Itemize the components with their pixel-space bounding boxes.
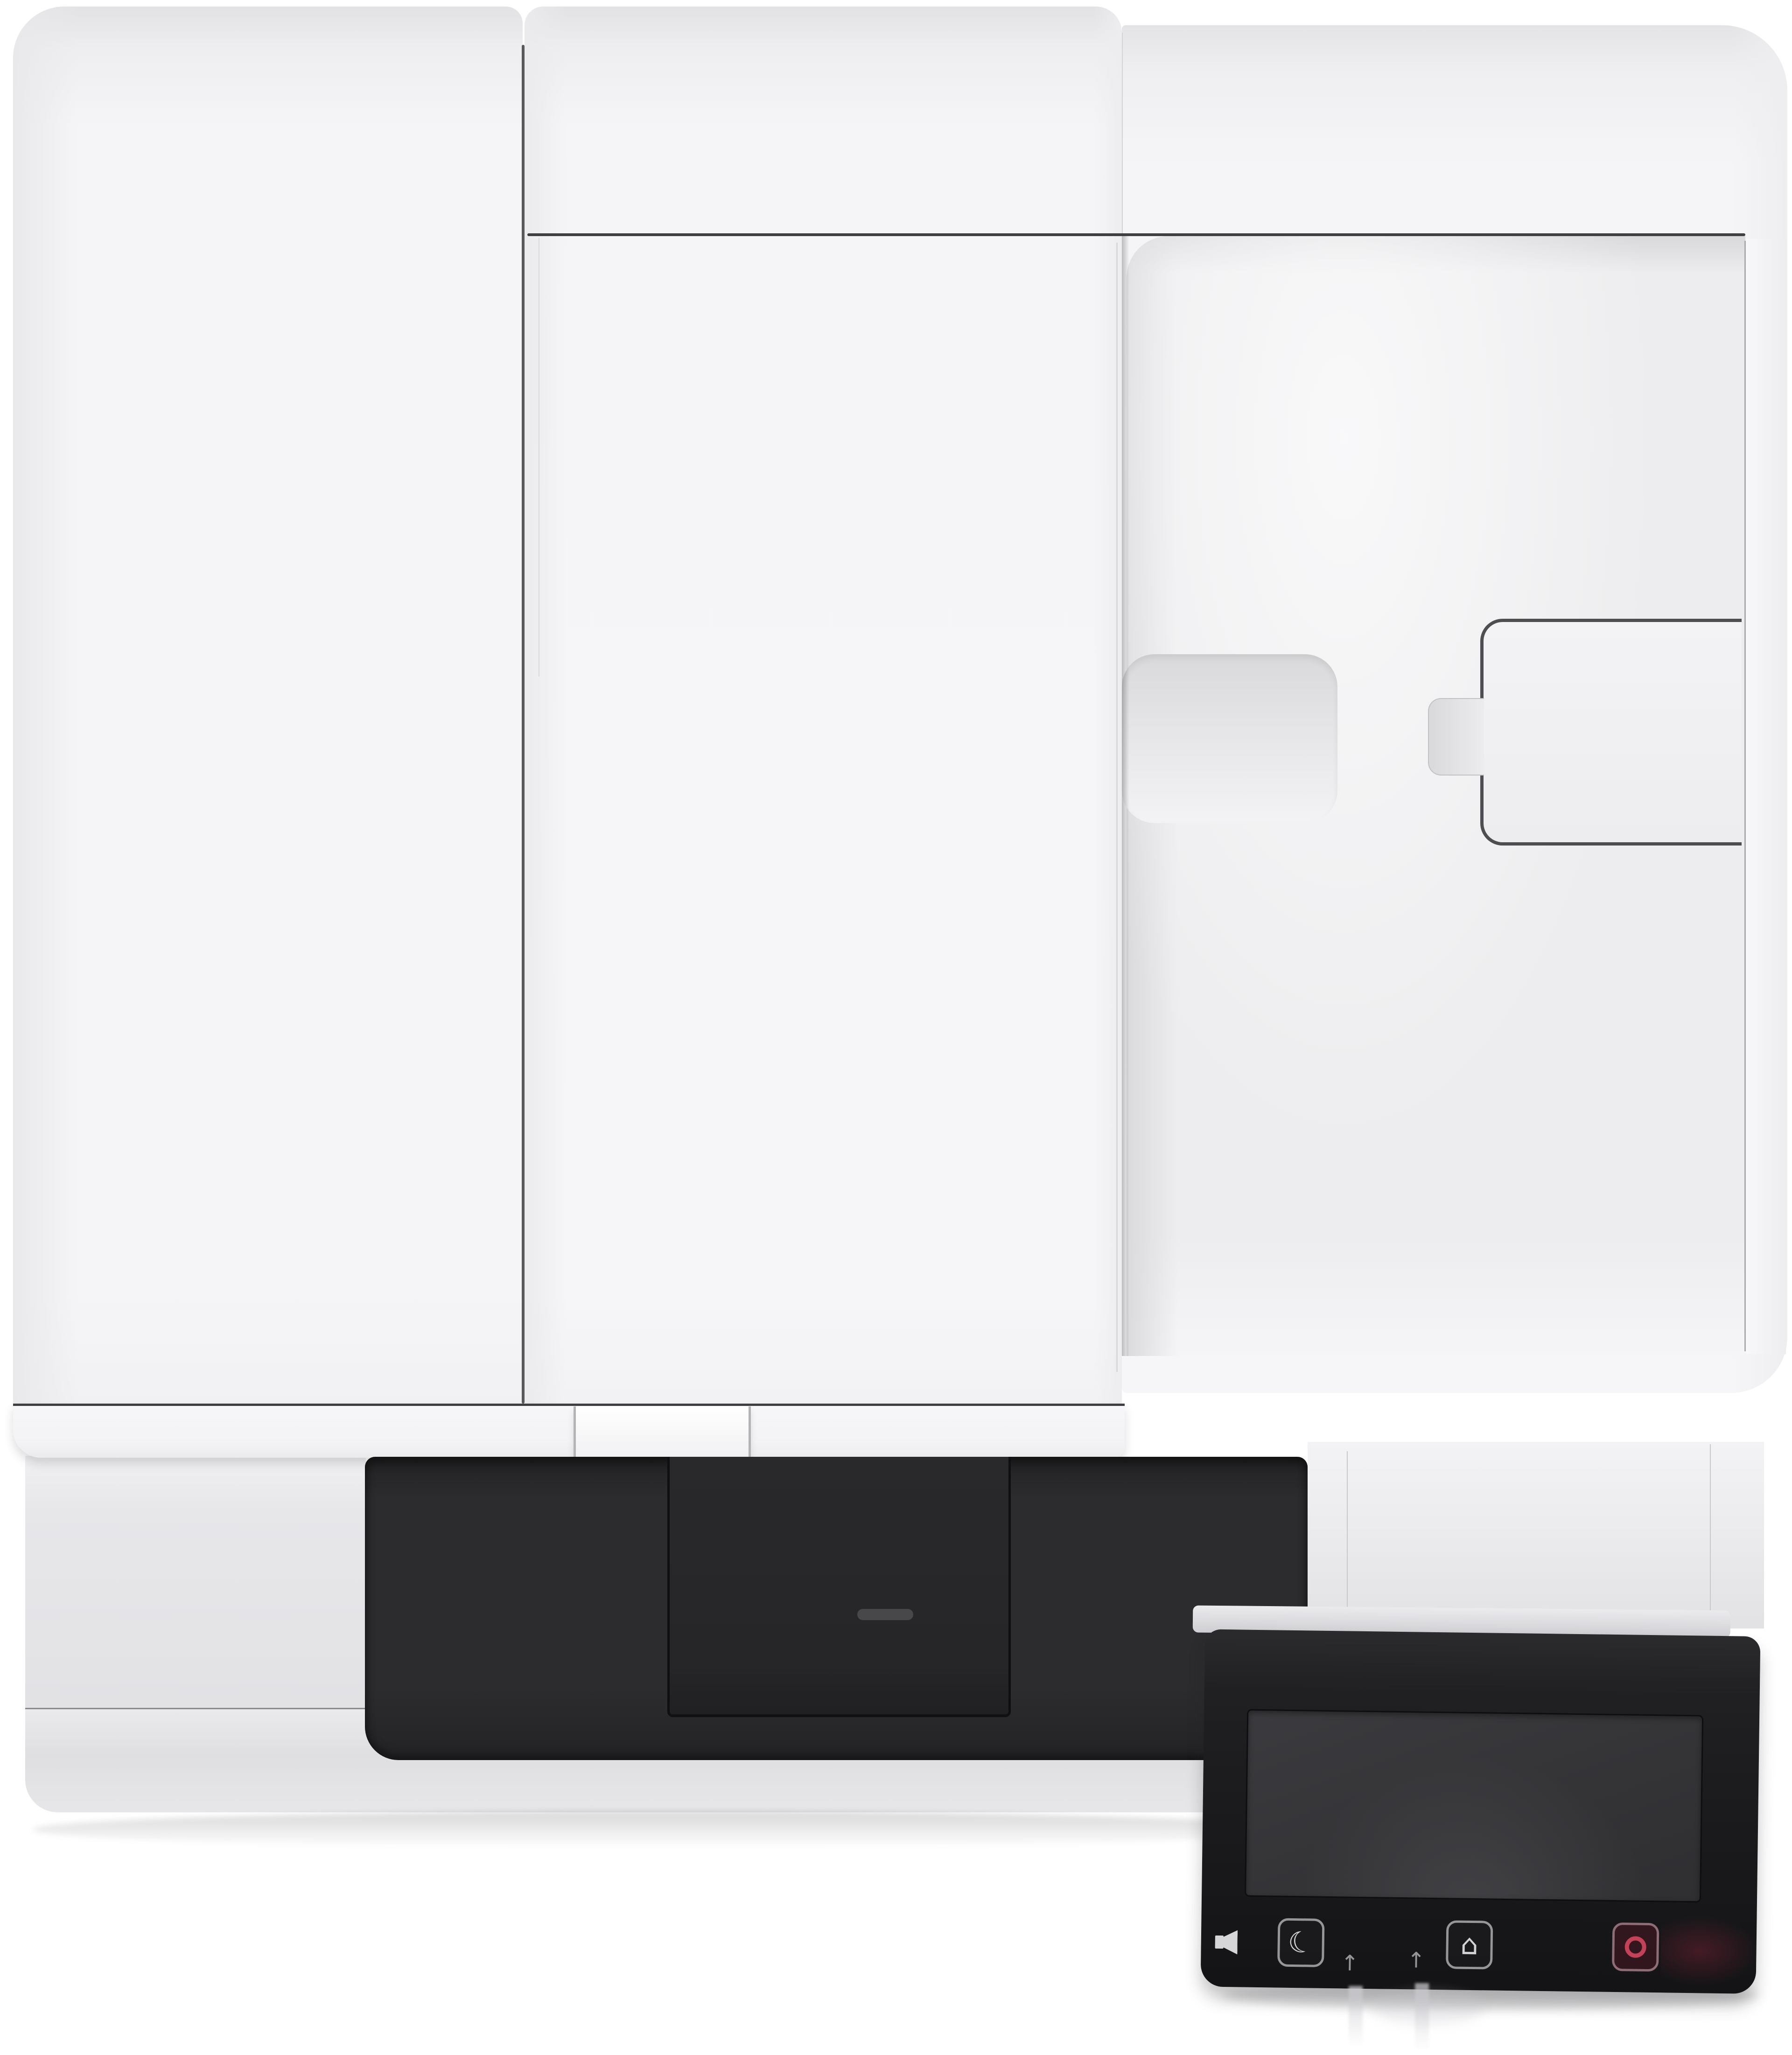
stop-ring-icon (1624, 1936, 1646, 1958)
front-paper-tray-slot (365, 1457, 1308, 1760)
energy-saver-button[interactable]: ☾ (1277, 1918, 1324, 1967)
adf-body-gap-shadow (1121, 236, 1129, 1356)
scanner-lid-front-lip (13, 1404, 1125, 1458)
control-panel: ☾ ⌂ ↑ ↑ (1201, 1629, 1761, 1994)
touchscreen-display[interactable] (1245, 1709, 1703, 1903)
reflection-blob (1372, 1992, 1484, 2024)
mount-seam (1710, 1444, 1711, 1622)
home-icon: ⌂ (1460, 1929, 1478, 1961)
front-face-left (25, 1456, 366, 1709)
crescent-moon-icon: ☾ (1285, 1926, 1316, 1959)
adf-door-right-seam (1116, 243, 1118, 1372)
flap-latch-tab[interactable] (1428, 698, 1484, 776)
home-button[interactable]: ⌂ (1446, 1920, 1493, 1969)
up-arrow-indicator-icon: ↑ (1407, 1949, 1425, 1971)
stop-button-glow (1660, 1915, 1759, 1986)
handle-grip-dash (857, 1609, 913, 1620)
speaker-cone (1221, 1930, 1238, 1954)
stop-button[interactable] (1612, 1922, 1659, 1971)
paper-output-slot (1122, 654, 1337, 823)
lid-center-seam-highlight (539, 238, 539, 677)
base-drop-shadow (33, 1811, 1302, 1848)
speaker-volume-icon (1215, 1928, 1248, 1957)
paper-stop-flap[interactable] (1480, 619, 1742, 846)
tray-pull-handle[interactable] (667, 1457, 1011, 1717)
adf-feeder-door[interactable] (525, 7, 1122, 1405)
lid-center-seam (522, 45, 525, 1404)
body-edge-seam (1744, 241, 1746, 1351)
top-band-seam (1122, 33, 1123, 233)
mount-seam (1347, 1451, 1348, 1619)
reflection-streak (1349, 1986, 1363, 2047)
right-rim-edge (1746, 239, 1786, 1354)
adf-door-top-seam (527, 233, 1745, 236)
panel-mount-face (1308, 1442, 1764, 1629)
printer-product-photo: ☾ ⌂ ↑ ↑ (0, 0, 1792, 2055)
up-arrow-indicator-icon: ↑ (1341, 1952, 1359, 1974)
scanner-lid-left-panel[interactable] (13, 7, 523, 1405)
